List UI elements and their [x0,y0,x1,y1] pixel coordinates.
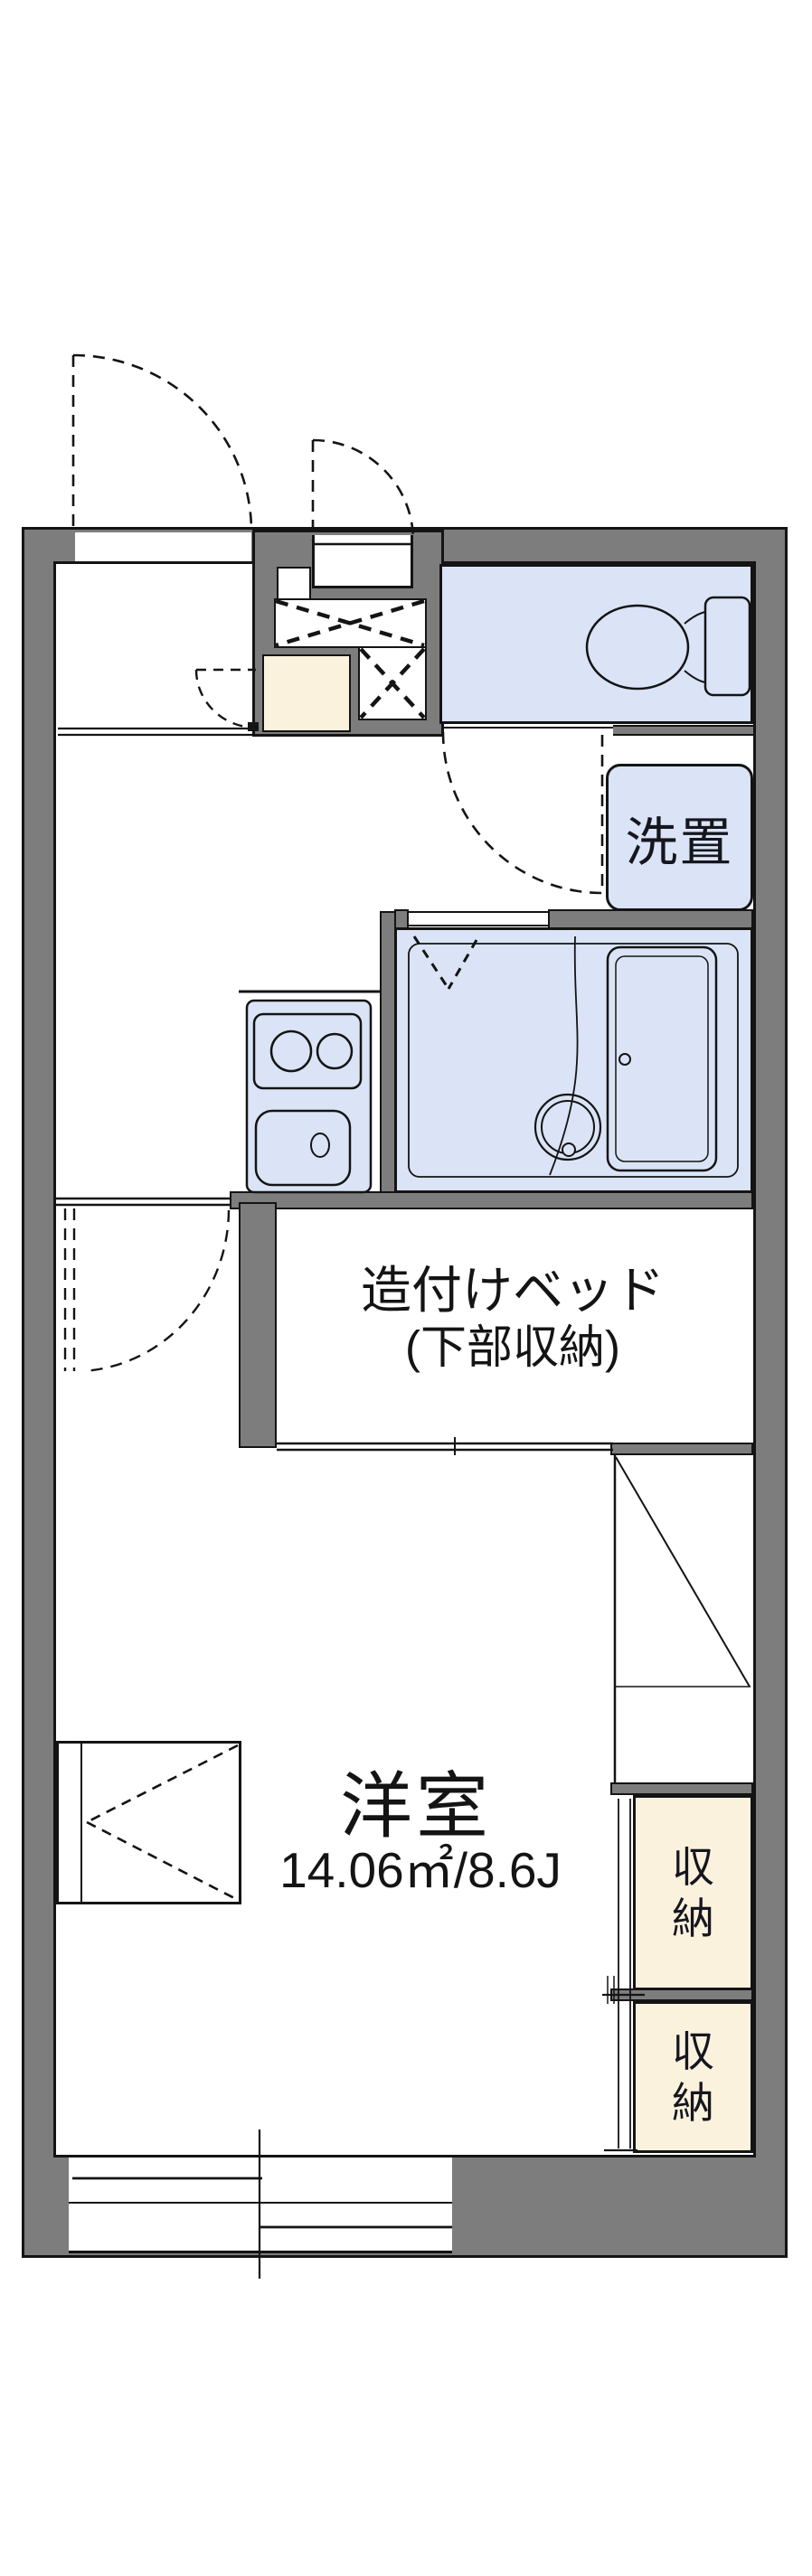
storage-lower-label: 収納 [670,2026,717,2129]
room-storage-lower: 収納 [633,2001,753,2153]
bed-area-top-wall [230,1191,753,1209]
entry-closet-upper [274,598,427,648]
bathroom-top-wall-left [394,909,409,929]
floor-plan-page: 洗置 造付けベッド (下部収納) 収納 収納 洋室 14.06㎡/8.6J [0,0,812,2576]
bed-label-line1: 造付けベッド [277,1262,749,1320]
closet-column-top-wall [610,1443,753,1455]
room-area-label: 14.06㎡/8.6J [231,1829,610,1902]
storage-divider-wall [610,1988,753,2001]
room-toilet [439,564,753,724]
closet-column-bottom-wall [610,1782,753,1795]
washer-place-label: 洗置 [625,800,733,876]
entry-door-swing-icon [73,355,413,541]
left-window-alcove [56,1741,241,1904]
bed-area-left-wall [239,1202,277,1448]
hall-wall-stub [613,725,753,736]
room-washer-place: 洗置 [606,764,753,911]
bed-area-label: 造付けベッド (下部収納) [277,1262,749,1376]
bathroom-top-wall-right [548,909,753,929]
shoe-cabinet [262,654,351,732]
room-storage-upper: 収納 [633,1795,753,1990]
entrance-porch [312,535,413,588]
entry-door-opening [75,532,251,561]
room-bathroom [394,927,753,1193]
entry-closet-lower [358,646,427,720]
bed-label-line2: (下部収納) [277,1320,749,1375]
bottom-sliding-window [69,2158,452,2253]
storage-upper-label: 収納 [670,1841,717,1945]
